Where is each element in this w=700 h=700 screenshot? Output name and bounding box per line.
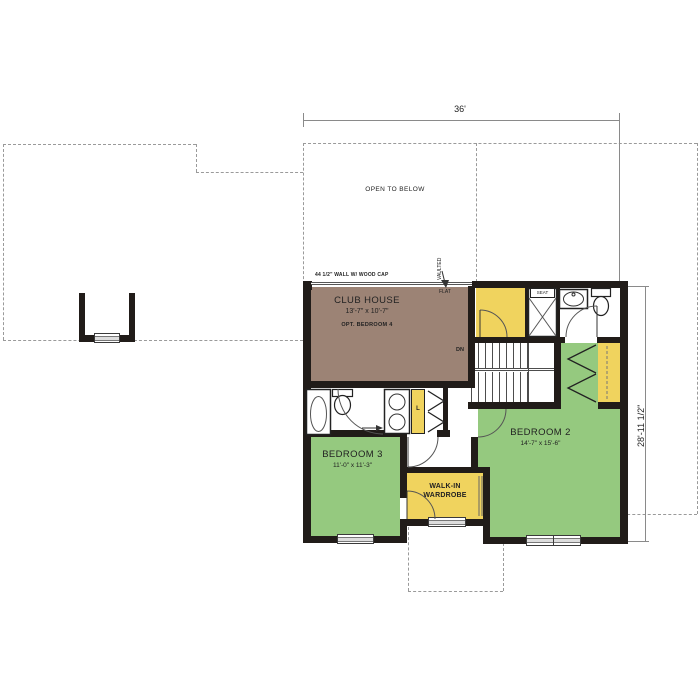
toilet-bowl xyxy=(335,396,351,415)
wardrobe-name-line2: WARDROBE xyxy=(407,492,483,500)
flat-label: FLAT xyxy=(439,290,451,296)
vanity xyxy=(385,390,410,434)
fixtures-overlay xyxy=(0,0,700,700)
bedroom3-name: BEDROOM 3 xyxy=(295,450,410,461)
wall-note-label: 44 1/2" WALL W/ WOOD CAP xyxy=(315,273,388,279)
club-house-name: CLUB HOUSE xyxy=(306,296,428,307)
stairs-dn-label: DN xyxy=(456,347,464,353)
linen-label: L xyxy=(411,406,425,413)
dimension-label-top: 36' xyxy=(440,104,480,114)
bifold-door xyxy=(428,412,444,432)
bifold-door xyxy=(568,374,596,402)
wardrobe-name-line1: WALK-IN xyxy=(407,483,483,491)
bedroom3-dims: 11'-0" x 11'-3" xyxy=(295,462,410,469)
dimension-label-right: 28'-11 1/2" xyxy=(636,405,646,447)
bifold-door xyxy=(568,345,596,373)
bedroom2-name: BEDROOM 2 xyxy=(478,428,603,439)
open-to-below-label: OPEN TO BELOW xyxy=(330,186,460,193)
club-house-dims: 13'-7" x 10'-7" xyxy=(306,308,428,316)
bath-door-swing xyxy=(566,306,597,337)
floor-plan: 36' 28'-11 1/2" xyxy=(0,0,700,700)
closet-door-swing xyxy=(480,310,507,337)
bedroom2-dims: 14'-7" x 15'-6" xyxy=(478,440,603,447)
vaulted-label: VAULTED xyxy=(438,258,444,280)
direction-arrow-head xyxy=(376,425,383,431)
toilet-tank xyxy=(592,289,611,297)
club-house-note: OPT. BEDROOM 4 xyxy=(306,322,428,328)
shower-seat-label: SEAT xyxy=(530,290,555,295)
vault-arrow-head xyxy=(441,280,449,288)
bedroom3-door-swing xyxy=(408,437,438,467)
bifold-door xyxy=(428,391,444,411)
